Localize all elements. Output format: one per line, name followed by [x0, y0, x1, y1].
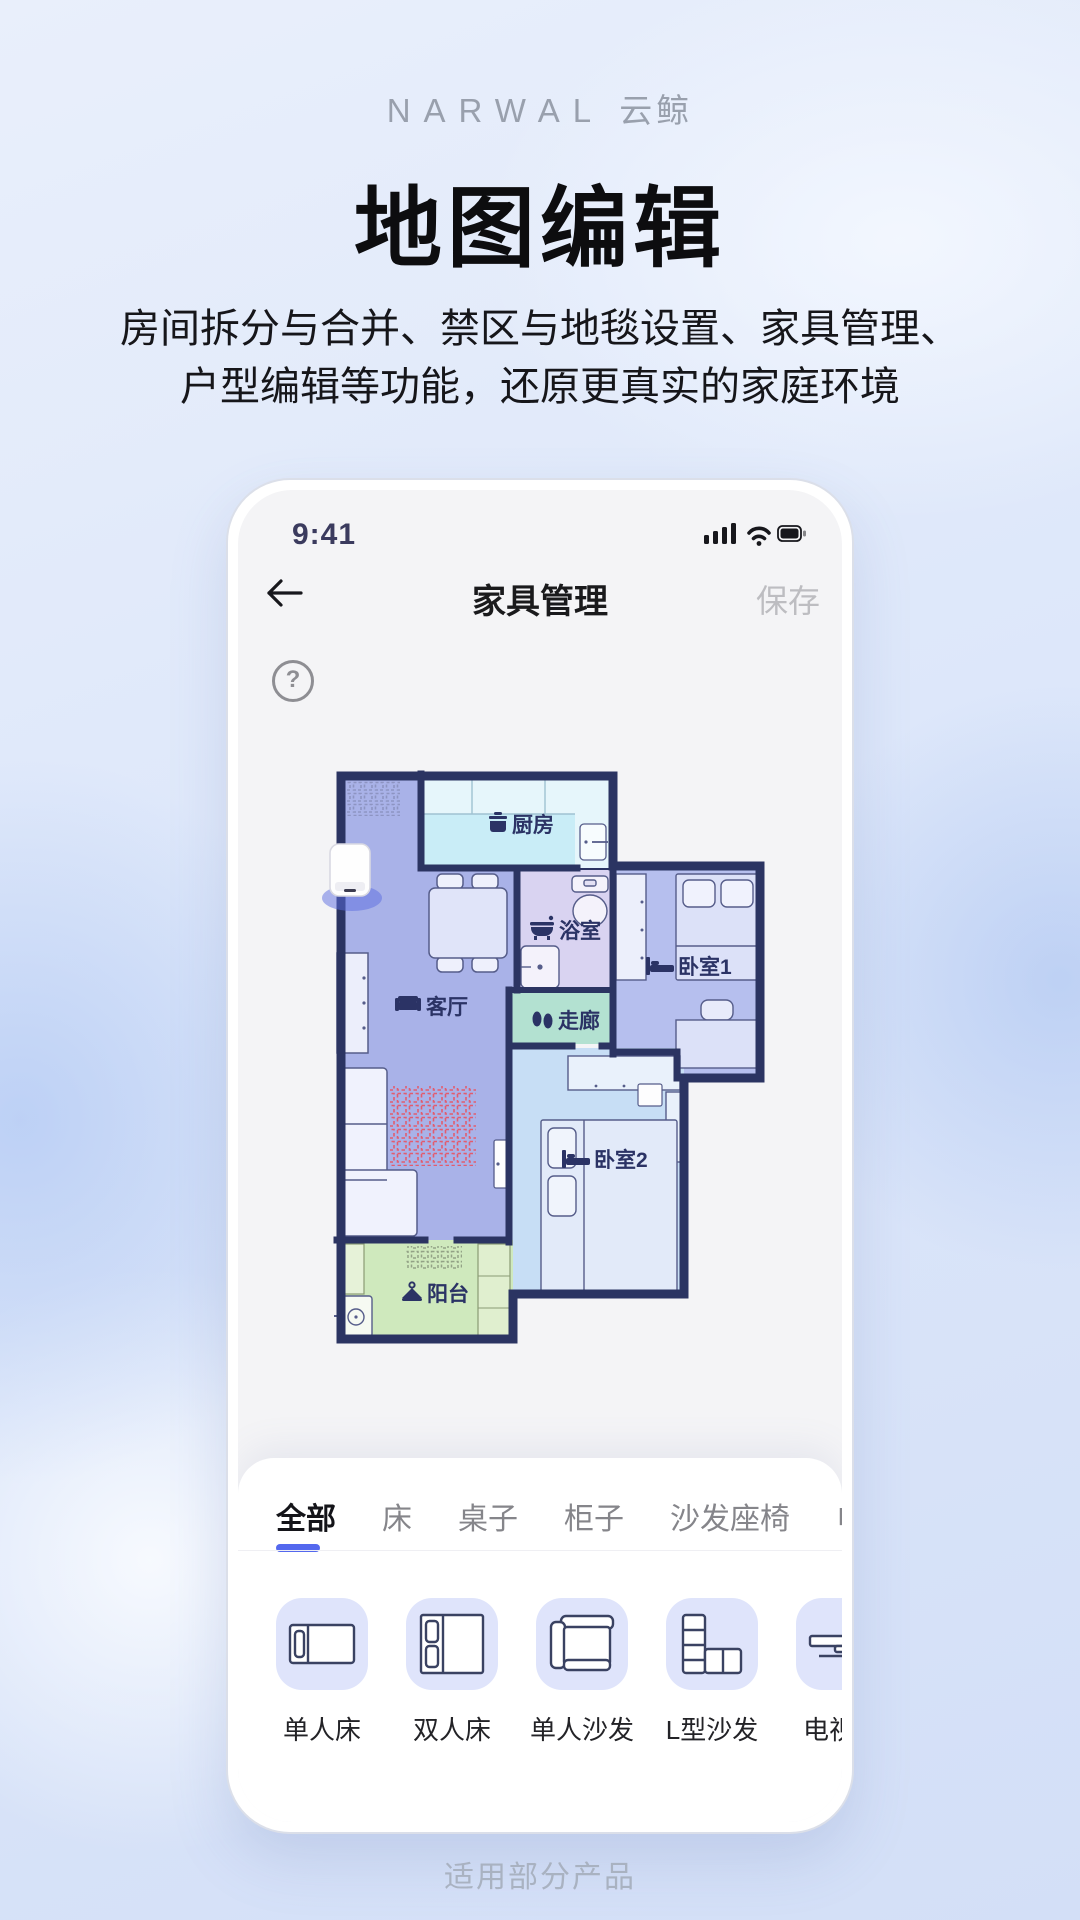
battery-icon — [778, 526, 806, 541]
brand-name-cn: 云鲸 — [619, 92, 693, 129]
status-bar: 9:41 — [238, 516, 842, 552]
floor-plan-map[interactable]: 厨房 浴室 卧室1 — [320, 752, 790, 1352]
l-sofa-icon — [677, 1612, 747, 1676]
wifi-icon — [749, 528, 769, 546]
cabinet-bedroom2[interactable] — [568, 1056, 680, 1090]
help-button[interactable]: ? — [272, 660, 314, 702]
bathroom-sink — [517, 946, 559, 988]
category-tabs: 全部 床 桌子 柜子 沙发座椅 电视柜 — [276, 1494, 842, 1538]
furniture-card[interactable] — [536, 1598, 628, 1690]
brand-logo: NARWAL 云鲸 — [0, 84, 1080, 132]
furniture-card[interactable] — [666, 1598, 758, 1690]
door-bedroom2 — [638, 1084, 662, 1106]
brand-name: NARWAL — [387, 92, 604, 129]
furniture-item-label: L型沙发 — [666, 1710, 758, 1747]
save-button[interactable]: 保存 — [756, 576, 820, 622]
furniture-item-single-bed[interactable]: 单人床 — [276, 1598, 368, 1747]
room-label-kitchen: 厨房 — [512, 813, 554, 837]
page-title: 地图编辑 — [0, 158, 1080, 285]
marketing-page: NARWAL 云鲸 地图编辑 房间拆分与合并、禁区与地毯设置、家具管理、 户型编… — [0, 0, 1080, 1920]
bed-bedroom2[interactable] — [541, 1120, 677, 1292]
tab-cabinet[interactable]: 柜子 — [564, 1494, 624, 1538]
subtitle-line-2: 户型编辑等功能，还原更真实的家庭环境 — [180, 365, 900, 409]
room-label-living: 客厅 — [426, 995, 468, 1019]
no-mop-zone[interactable] — [390, 1086, 476, 1166]
door-kitchen — [580, 824, 608, 860]
furniture-card[interactable] — [406, 1598, 498, 1690]
tab-all[interactable]: 全部 — [276, 1494, 336, 1538]
furniture-item-l-sofa[interactable]: L型沙发 — [666, 1598, 758, 1747]
screen-title: 家具管理 — [238, 574, 842, 623]
furniture-items: 单人床 双人床 — [276, 1598, 842, 1747]
balcony-wardrobe — [478, 1244, 510, 1338]
wardrobe-bedroom1[interactable] — [616, 874, 646, 980]
tab-tv-stand[interactable]: 电视柜 — [836, 1494, 842, 1538]
carpet-zone — [342, 780, 400, 816]
desk-bedroom1[interactable] — [676, 1020, 760, 1068]
tab-table[interactable]: 桌子 — [458, 1494, 518, 1538]
single-sofa-icon — [547, 1612, 617, 1676]
furniture-card[interactable] — [796, 1598, 842, 1690]
page-subtitle: 房间拆分与合并、禁区与地毯设置、家具管理、 户型编辑等功能，还原更真实的家庭环境 — [0, 300, 1080, 416]
furniture-card[interactable] — [276, 1598, 368, 1690]
tab-bed[interactable]: 床 — [382, 1494, 412, 1538]
furniture-item-label: 单人沙发 — [530, 1710, 634, 1747]
furniture-item-tv-stand[interactable]: 电视柜 — [796, 1598, 842, 1747]
room-label-bedroom2: 卧室2 — [594, 1148, 648, 1172]
question-mark-icon: ? — [286, 666, 301, 693]
room-label-balcony: 阳台 — [427, 1282, 469, 1306]
footer-note: 适用部分产品 — [0, 1852, 1080, 1896]
furniture-item-label: 单人床 — [283, 1710, 361, 1747]
single-bed-icon — [287, 1616, 357, 1672]
status-icons — [704, 520, 808, 548]
room-label-bathroom: 浴室 — [559, 919, 601, 943]
furniture-sheet: 全部 床 桌子 柜子 沙发座椅 电视柜 — [238, 1458, 842, 1822]
balcony-mat — [406, 1246, 462, 1270]
tab-sofa-seat[interactable]: 沙发座椅 — [670, 1494, 790, 1538]
signal-icon — [704, 523, 736, 544]
divider — [238, 1550, 842, 1551]
room-label-bedroom1: 卧室1 — [678, 955, 732, 979]
phone-screen: 9:41 — [238, 490, 842, 1822]
furniture-item-label: 电视柜 — [803, 1710, 842, 1747]
tv-stand-icon — [807, 1622, 842, 1666]
furniture-item-single-sofa[interactable]: 单人沙发 — [536, 1598, 628, 1747]
furniture-item-double-bed[interactable]: 双人床 — [406, 1598, 498, 1747]
subtitle-line-1: 房间拆分与合并、禁区与地毯设置、家具管理、 — [120, 307, 960, 351]
furniture-item-label: 双人床 — [413, 1710, 491, 1747]
nav-bar: 家具管理 保存 — [238, 568, 842, 620]
status-time: 9:41 — [292, 518, 356, 552]
phone-mockup: 9:41 — [228, 480, 852, 1832]
sofa-icon — [395, 996, 421, 1011]
chair-bedroom1[interactable] — [701, 1000, 733, 1020]
double-bed-icon — [417, 1612, 487, 1676]
room-label-corridor: 走廊 — [558, 1009, 600, 1033]
dining-set[interactable] — [429, 874, 507, 972]
